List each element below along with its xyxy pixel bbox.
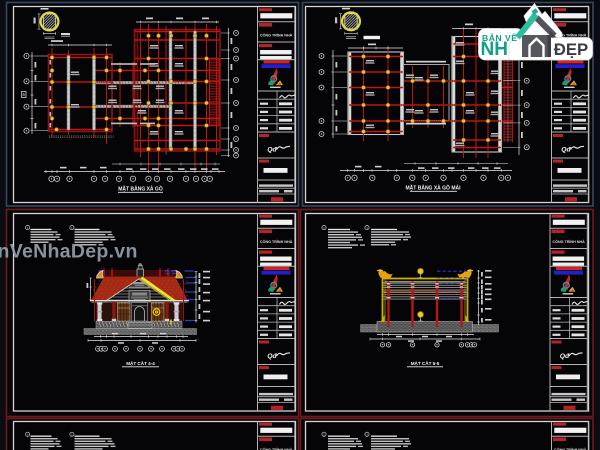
svg-text:Qđ: Qđ: [267, 147, 277, 154]
svg-text:MẶT BẰNG XÀ GỒ MÁI: MẶT BẰNG XÀ GỒ MÁI: [406, 183, 462, 191]
svg-text:ĐẸP: ĐẸP: [554, 40, 589, 59]
svg-text:CÔNG TRÌNH NHÀ: CÔNG TRÌNH NHÀ: [260, 239, 293, 244]
svg-text:CÔNG TRÌNH NHÀ: CÔNG TRÌNH NHÀ: [260, 33, 293, 38]
svg-text:MẶT CẮT 4-4: MẶT CẮT 4-4: [126, 359, 155, 366]
svg-text:NH: NH: [481, 39, 508, 60]
svg-text:MẶT CẮT 5-5: MẶT CẮT 5-5: [411, 359, 440, 366]
svg-text:Qđ: Qđ: [560, 353, 570, 360]
svg-text:MẶT BẰNG XÀ GỒ: MẶT BẰNG XÀ GỒ: [118, 184, 163, 192]
svg-text:Qđ: Qđ: [267, 353, 277, 360]
svg-text:Qđ: Qđ: [561, 147, 571, 154]
svg-text:CÔNG TRÌNH NHÀ: CÔNG TRÌNH NHÀ: [552, 239, 585, 244]
svg-text:BanVeNhaDep.vn: BanVeNhaDep.vn: [0, 241, 138, 263]
